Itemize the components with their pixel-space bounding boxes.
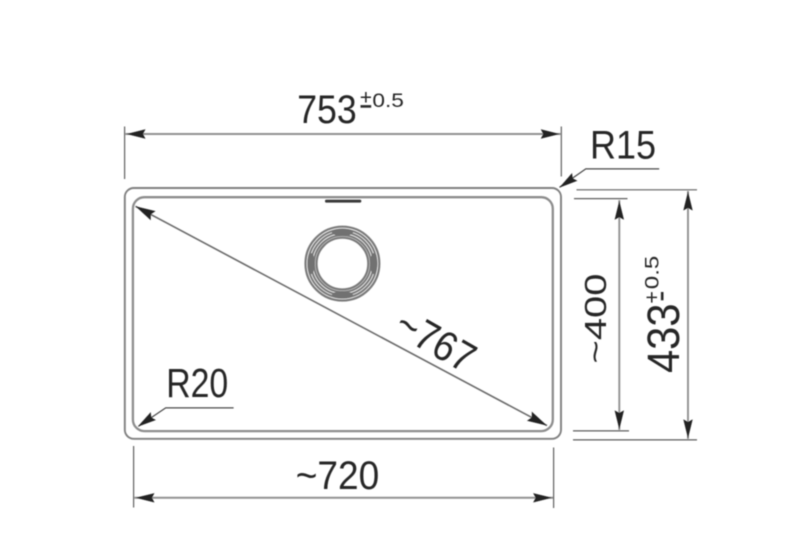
svg-text:R20: R20: [166, 360, 228, 406]
svg-text:~720: ~720: [296, 454, 380, 498]
svg-text:753: 753: [297, 88, 357, 132]
svg-text:+: +: [640, 291, 664, 304]
svg-text:433: 433: [638, 304, 689, 374]
svg-text:0.5: 0.5: [643, 256, 664, 290]
svg-text:R15: R15: [590, 124, 656, 168]
svg-text:0.5: 0.5: [372, 91, 404, 112]
svg-text:~400: ~400: [578, 274, 613, 364]
